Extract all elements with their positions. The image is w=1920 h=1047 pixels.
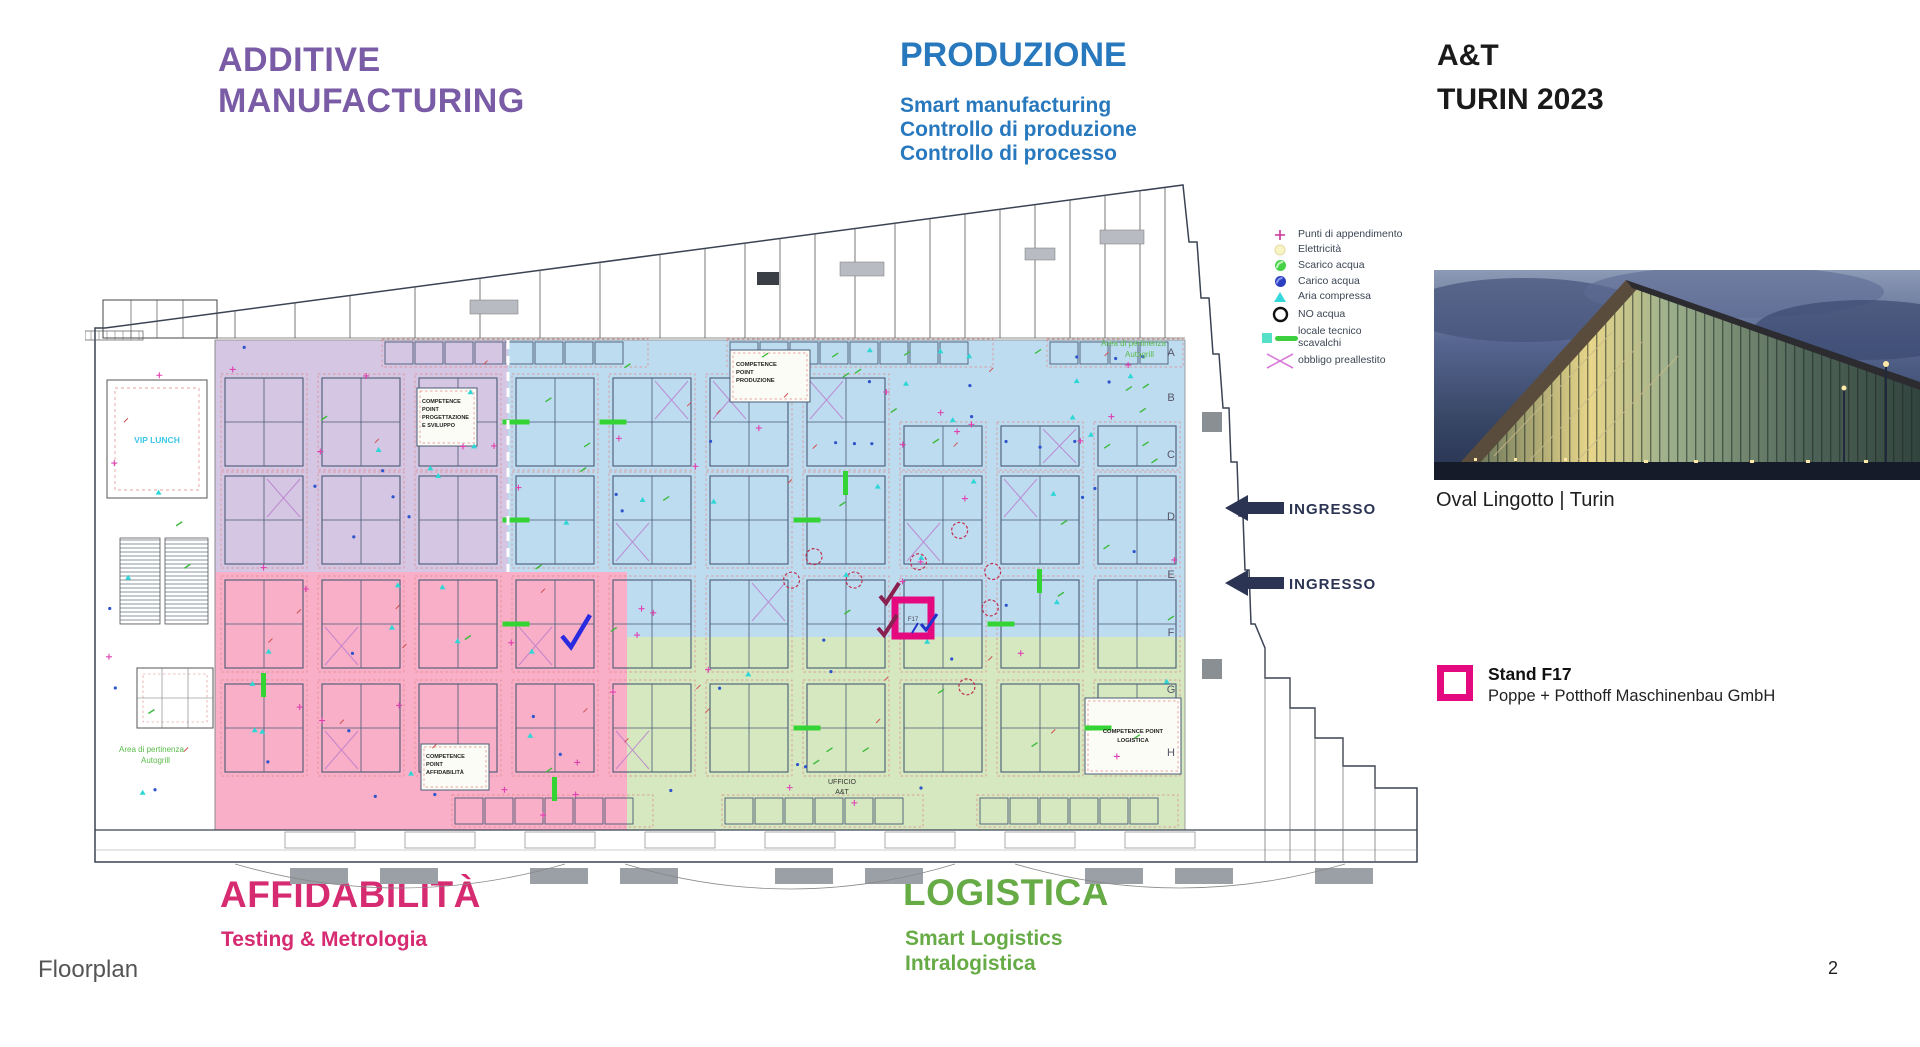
event-title: A&T TURIN 2023 xyxy=(1437,34,1604,122)
cp-progettazione-line4: E SVILUPPO xyxy=(422,423,456,429)
cp-produzione-line2: POINT xyxy=(736,370,754,376)
pertinenza-tr-line1: Area di pertinenza xyxy=(1101,339,1166,348)
cp-progettazione-line2: POINT xyxy=(422,407,439,413)
cp-produzione-line3: PRODUZIONE xyxy=(736,378,775,384)
cp-produzione-line1: COMPETENCE xyxy=(736,362,777,368)
cp-progettazione-line1: COMPETENCE xyxy=(422,399,461,405)
ufficio-label-line2: A&T xyxy=(835,789,849,796)
stand-callout: Stand F17 Poppe + Potthoff Maschinenbau … xyxy=(1437,663,1775,707)
pertinenza-bl-line1: Area di pertinenza xyxy=(119,745,184,754)
slide-footer-label: Floorplan xyxy=(38,956,138,984)
ingresso-label-1: INGRESSO xyxy=(1289,501,1376,518)
slide: ADDITIVE MANUFACTURING PRODUZIONE Smart … xyxy=(0,0,1920,1047)
stand-marker-icon xyxy=(1437,665,1473,701)
pertinenza-tr-line2: Autogrill xyxy=(1125,350,1154,359)
vip-lunch-label: VIP LUNCH xyxy=(134,435,180,445)
cp-affidabilita-line1: COMPETENCE xyxy=(426,754,465,760)
heading-produzione: PRODUZIONE xyxy=(900,36,1127,74)
row-letter-b: B xyxy=(1167,392,1174,404)
subtitle-logistica: Smart Logistics Intralogistica xyxy=(905,926,1063,976)
subtitle-affidabilita: Testing & Metrologia xyxy=(221,928,427,952)
heading-additive-line2: MANUFACTURING xyxy=(218,81,525,122)
row-letter-e: E xyxy=(1167,569,1174,581)
row-letter-g: G xyxy=(1167,684,1176,696)
row-letter-h: H xyxy=(1167,747,1175,759)
event-title-line2: TURIN 2023 xyxy=(1437,78,1604,122)
heading-additive-line1: ADDITIVE xyxy=(218,40,525,81)
cp-affidabilita-line3: AFFIDABILITÀ xyxy=(426,769,464,776)
ingresso-arrow-2 xyxy=(1225,570,1284,596)
cp-logistica-line1: COMPETENCE POINT xyxy=(1103,729,1164,735)
row-letter-a: A xyxy=(1167,347,1175,359)
venue-photo xyxy=(1434,270,1920,480)
cp-affidabilita-line2: POINT xyxy=(426,762,443,768)
heading-additive-manufacturing: ADDITIVE MANUFACTURING xyxy=(218,40,525,122)
venue-caption: Oval Lingotto | Turin xyxy=(1436,489,1615,512)
ingresso-label-2: INGRESSO xyxy=(1289,576,1376,593)
row-letter-c: C xyxy=(1167,449,1175,461)
floorplan: A B C D E F G H VIP LUNCH UFFICIO A&T Ar… xyxy=(85,150,1430,895)
ingresso-arrow-1 xyxy=(1225,495,1284,521)
event-title-line1: A&T xyxy=(1437,34,1604,78)
stand-company: Poppe + Potthoff Maschinenbau GmbH xyxy=(1488,685,1775,707)
cp-progettazione-line3: PROGETTAZIONE xyxy=(422,415,469,421)
stand-booth-label: F17 xyxy=(908,617,919,623)
pertinenza-bl-line2: Autogrill xyxy=(141,756,170,765)
row-letter-f: F xyxy=(1168,627,1175,639)
ufficio-label-line1: UFFICIO xyxy=(828,779,857,786)
exterior-block-2 xyxy=(1202,659,1222,679)
page-number: 2 xyxy=(1828,958,1838,979)
stand-title: Stand F17 xyxy=(1488,663,1775,685)
row-letter-d: D xyxy=(1167,511,1175,523)
exterior-block-1 xyxy=(1202,412,1222,432)
cp-logistica-line2: LOGISTICA xyxy=(1117,738,1149,744)
